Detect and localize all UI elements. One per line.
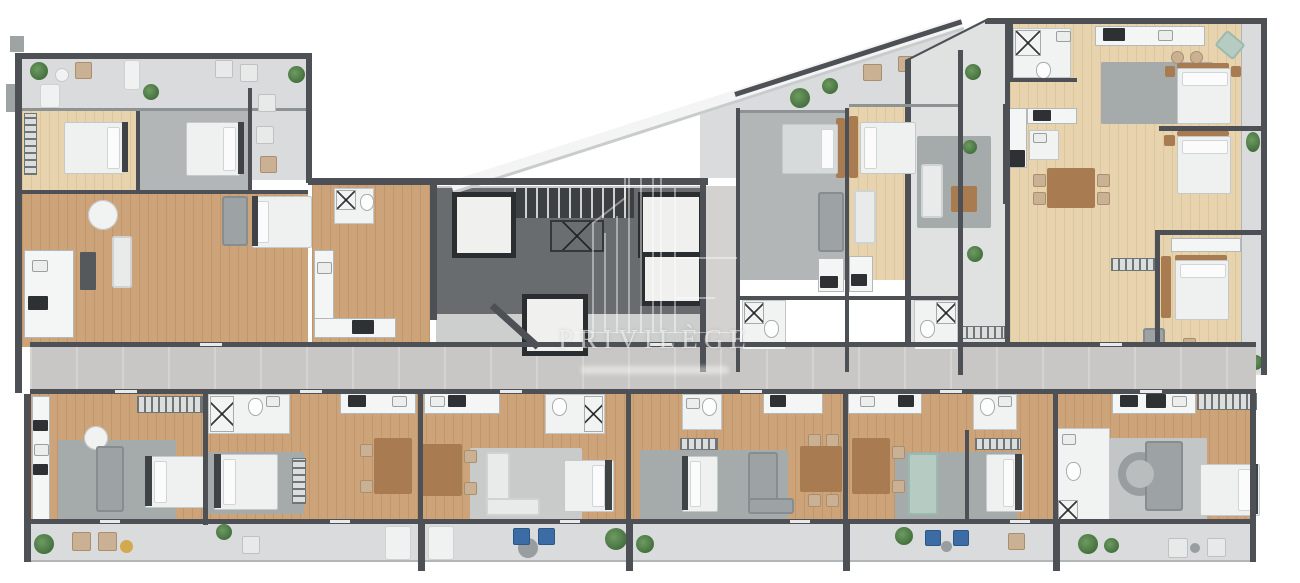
elevator-shaft (638, 192, 704, 258)
wall (1009, 78, 1077, 82)
toilet (980, 398, 995, 416)
wall (1155, 230, 1267, 235)
bed-headboard (605, 460, 612, 510)
bed (252, 196, 312, 248)
appliance (33, 464, 48, 475)
exterior-ledge (10, 36, 24, 52)
bed (1175, 260, 1229, 320)
wall (15, 53, 22, 393)
dining-table (1047, 168, 1095, 208)
toilet (360, 194, 374, 211)
dining-table-round (88, 200, 118, 230)
plant (605, 528, 627, 550)
balcony-chair (1168, 538, 1188, 558)
balcony-chair (863, 64, 882, 81)
pouf (941, 541, 952, 552)
sink (430, 396, 445, 407)
bed (186, 122, 240, 176)
door-gap (650, 343, 672, 346)
pillow (1182, 72, 1228, 86)
door-gap (500, 390, 522, 393)
chair (1097, 174, 1110, 187)
shower (936, 302, 956, 324)
sofa (222, 196, 248, 246)
wall (849, 296, 961, 300)
pillow (154, 461, 167, 503)
sink (34, 444, 49, 456)
wall (736, 108, 740, 372)
nightstand (1231, 66, 1241, 77)
door-gap (790, 520, 810, 523)
balcony-divider (843, 521, 850, 571)
shower (1015, 30, 1041, 56)
door-gap (940, 390, 962, 393)
plant (288, 66, 305, 83)
sink (1062, 434, 1076, 445)
dining-table (374, 438, 412, 494)
wall (965, 430, 969, 523)
stove (1033, 110, 1051, 121)
sink (860, 396, 875, 407)
toilet (1036, 62, 1051, 79)
fridge (1008, 150, 1025, 167)
sink (1056, 31, 1071, 42)
chair (808, 494, 821, 507)
shower (210, 396, 234, 432)
wall (1159, 126, 1267, 131)
elevator-shaft (640, 252, 704, 306)
armchair-round (1126, 460, 1154, 488)
sink (317, 262, 332, 274)
chair (826, 494, 839, 507)
pillow (223, 127, 236, 171)
balcony-table (55, 68, 69, 82)
pillow (864, 127, 877, 169)
toilet (552, 398, 567, 416)
wall (1261, 18, 1267, 375)
shower (584, 396, 603, 432)
kitchen-island (80, 252, 96, 290)
balcony-divider (1053, 521, 1060, 571)
toilet (920, 320, 935, 338)
sink (32, 260, 48, 272)
bed (214, 454, 278, 510)
plant (963, 140, 977, 154)
unit-divider-wall (626, 394, 631, 525)
sofa (818, 192, 844, 252)
wardrobe (137, 396, 203, 413)
appliance (1146, 394, 1166, 408)
wall (308, 178, 432, 185)
sofa-l (748, 498, 794, 514)
wall (30, 519, 1256, 524)
wall (136, 111, 140, 193)
bed-headboard (145, 456, 152, 506)
wall (248, 88, 252, 192)
corridor-floor (30, 347, 1256, 389)
sofa (112, 236, 132, 288)
wall (985, 18, 1267, 24)
sink (998, 396, 1012, 407)
balcony-strip (1241, 24, 1262, 373)
staircase (514, 188, 634, 218)
unit-divider-wall (1053, 394, 1058, 525)
plant (790, 88, 810, 108)
stove (898, 395, 914, 407)
stove (851, 274, 867, 286)
door-gap (330, 520, 350, 523)
nightstand-panel (849, 116, 858, 178)
door-gap (300, 390, 322, 393)
chair (360, 444, 373, 457)
plant (822, 78, 838, 94)
chair (1033, 192, 1046, 205)
balcony-chair (98, 532, 117, 551)
pillow (592, 465, 605, 507)
wall (430, 178, 708, 185)
bed-headboard (238, 122, 244, 174)
chair (464, 450, 477, 463)
shower (744, 302, 764, 324)
toilet (1066, 462, 1081, 481)
stair-landing-x (550, 220, 604, 252)
door-gap (1140, 390, 1162, 393)
bed (1177, 136, 1231, 194)
floor-plan-canvas: PRIVILÈGE (0, 0, 1300, 583)
door-gap (740, 390, 762, 393)
door-gap (560, 520, 580, 523)
stove (448, 395, 466, 407)
wall (30, 389, 1256, 394)
wall (845, 108, 849, 372)
plant (1246, 132, 1260, 152)
wall (1155, 230, 1160, 355)
pillow (223, 459, 236, 505)
plant (636, 535, 654, 553)
bed (64, 122, 124, 174)
chair (1097, 192, 1110, 205)
bed-headboard (682, 456, 688, 510)
chair (360, 480, 373, 493)
chair (892, 446, 905, 459)
balcony-chair (1008, 533, 1025, 550)
coffee-table (951, 186, 977, 212)
nightstand (1164, 135, 1175, 146)
shower (1058, 500, 1078, 520)
balcony-chair (75, 62, 92, 79)
pillow (107, 127, 120, 169)
dining-table (852, 438, 890, 494)
sink (1172, 396, 1187, 407)
stove (770, 395, 786, 407)
dining-table (800, 446, 842, 492)
sofa-l (486, 498, 540, 516)
balcony-chair-blue (538, 528, 555, 545)
unit-divider-wall (203, 394, 208, 525)
wardrobe (1197, 393, 1257, 410)
stove (28, 296, 48, 310)
door-gap (100, 520, 120, 523)
door-gap (200, 343, 222, 346)
balcony-chair (256, 126, 274, 144)
kitchen-counter (32, 396, 50, 522)
bed-headboard (252, 196, 258, 246)
door-gap (1010, 520, 1030, 523)
pouf (120, 540, 133, 553)
balcony-chair-blue (513, 528, 530, 545)
plant (967, 246, 983, 262)
toilet (702, 398, 717, 416)
sofa (854, 190, 876, 244)
window-band (849, 104, 959, 107)
bed-headboard (122, 122, 128, 172)
bed (1177, 68, 1231, 124)
balcony-chair (215, 60, 233, 78)
balcony-chair (72, 532, 91, 551)
nightstand-panel (1161, 256, 1171, 318)
plant (1078, 534, 1098, 554)
sofa (908, 453, 938, 515)
pillow (821, 129, 834, 169)
sofa (96, 446, 124, 512)
sink (686, 398, 700, 409)
chair (892, 480, 905, 493)
lounge-chair (385, 526, 411, 560)
bed (782, 124, 838, 174)
sink (392, 396, 407, 407)
stove (820, 276, 838, 288)
balcony-table (1190, 543, 1200, 553)
wardrobe (975, 438, 1021, 450)
balcony-divider (626, 521, 633, 571)
chair (464, 482, 477, 495)
plant (34, 534, 54, 554)
wardrobe (24, 113, 37, 175)
balcony-chair (242, 536, 260, 554)
balcony-chair-blue (953, 530, 969, 546)
wardrobe (1111, 258, 1157, 271)
wardrobe (680, 438, 718, 450)
wall (24, 394, 31, 562)
elevator-shaft (452, 192, 516, 258)
stove (1103, 28, 1125, 41)
plant (965, 64, 981, 80)
wardrobe (959, 326, 1005, 339)
wall (22, 190, 308, 194)
wall (1003, 104, 1007, 204)
stove (33, 420, 48, 431)
balcony-chair (258, 94, 276, 112)
wall (1009, 24, 1013, 80)
plant (1104, 538, 1119, 553)
wall (430, 180, 437, 320)
plant (216, 524, 232, 540)
door-gap (1100, 343, 1122, 346)
wall (15, 53, 310, 59)
bed (145, 456, 205, 508)
bed (860, 122, 916, 174)
unit-divider-wall (418, 394, 423, 525)
plant (143, 84, 159, 100)
balcony-chair (240, 64, 258, 82)
stove (1120, 395, 1138, 407)
balcony-chair (260, 156, 277, 173)
wardrobe (292, 458, 306, 504)
wall (1250, 394, 1256, 562)
lounge-chair (428, 526, 454, 560)
closet (1171, 238, 1241, 252)
wall (736, 296, 846, 300)
chair (1033, 174, 1046, 187)
lounge-chair (40, 84, 60, 108)
unit-divider-wall (843, 394, 848, 525)
lounge-chair (124, 60, 140, 90)
balcony-chair-blue (925, 530, 941, 546)
plant (895, 527, 913, 545)
plant (30, 62, 48, 80)
toilet (248, 398, 263, 416)
pillow (1182, 140, 1228, 154)
sofa (921, 164, 943, 218)
bed-headboard (1015, 454, 1022, 510)
door-gap (115, 390, 137, 393)
stove (348, 395, 366, 407)
sink (1158, 30, 1173, 41)
sink (266, 396, 280, 407)
toilet (764, 320, 779, 338)
stove (352, 320, 374, 334)
sink (1033, 133, 1047, 143)
pillow (690, 461, 701, 507)
pillow (1003, 459, 1014, 507)
bed-headboard (214, 454, 221, 508)
pillow (1180, 264, 1226, 278)
window-band (738, 110, 846, 113)
dining-table (420, 444, 462, 496)
balcony-divider (418, 521, 425, 571)
balcony-chair (1207, 538, 1226, 557)
shower (336, 190, 356, 210)
nightstand (1165, 66, 1175, 77)
wall (958, 50, 963, 375)
wall (306, 53, 312, 183)
